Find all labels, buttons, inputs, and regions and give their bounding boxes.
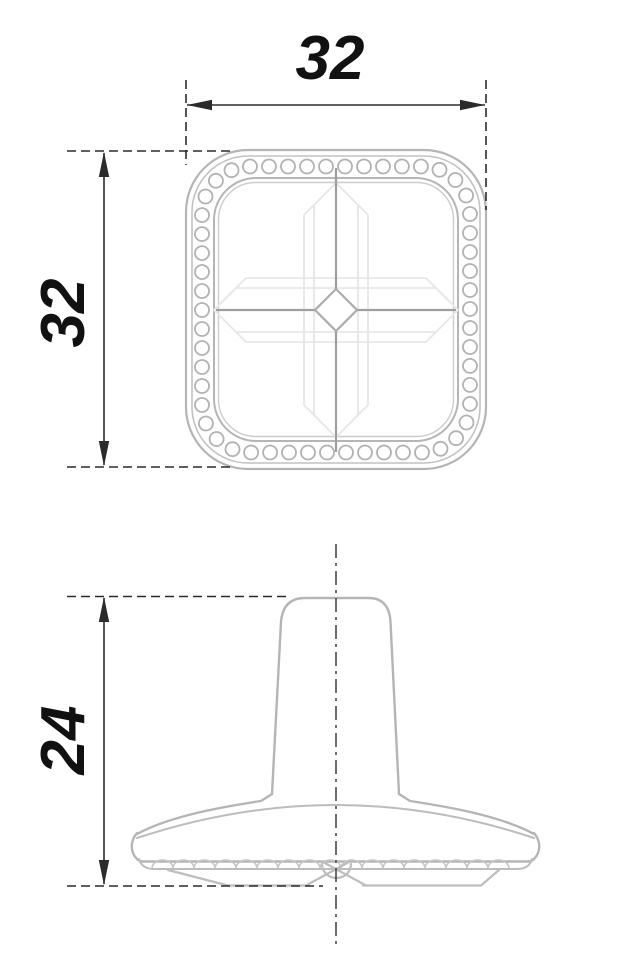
arrow-down-icon: [99, 441, 109, 466]
bottom-plate-left: [168, 870, 309, 886]
top-view: [186, 150, 486, 469]
bead-circle: [463, 283, 477, 297]
bottom-plate-right: [363, 870, 499, 886]
bead-circle: [396, 446, 410, 460]
bead-circle: [262, 160, 276, 174]
dimension-label-width: 32: [296, 24, 365, 93]
bead-circle: [434, 442, 448, 456]
bead-circle: [244, 446, 258, 460]
bead-circle: [463, 245, 477, 259]
technical-drawing-page: 32 32 24: [0, 0, 637, 962]
dimension-label-side-height: 24: [29, 706, 98, 776]
bead-circle: [449, 431, 463, 445]
bead-circle: [243, 160, 257, 174]
bead-circle: [195, 379, 209, 393]
bead-circle: [463, 378, 477, 392]
center-diamond: [315, 289, 357, 331]
bead-circle: [463, 397, 477, 411]
bead-circle: [195, 227, 209, 241]
dimension-label-height: 32: [29, 279, 98, 348]
arrow-up-icon: [99, 597, 109, 622]
bead-circle: [195, 398, 209, 412]
bead-circle: [199, 190, 213, 204]
bottom-plate: [168, 862, 499, 886]
bead-circle: [395, 160, 409, 174]
bead-circle: [225, 163, 239, 177]
bead-circle: [463, 321, 477, 335]
arrow-up-icon: [99, 152, 109, 177]
bead-circle: [433, 163, 447, 177]
arrow-down-icon: [99, 860, 109, 885]
bead-circle: [377, 446, 391, 460]
bead-circle: [338, 160, 352, 174]
bead-circle: [195, 322, 209, 336]
knob-dimension-drawing: 32 32 24: [0, 0, 637, 962]
bead-circle: [414, 160, 428, 174]
dimension-arrowheads: [99, 100, 485, 885]
bead-circle: [195, 341, 209, 355]
arrow-right-icon: [460, 100, 485, 110]
arrow-left-icon: [187, 100, 212, 110]
bead-circle: [195, 284, 209, 298]
bead-circle: [463, 302, 477, 316]
bead-circle: [195, 360, 209, 374]
bead-circle: [459, 189, 473, 203]
bead-circle: [448, 173, 462, 187]
bead-circle: [281, 160, 295, 174]
bead-circle: [320, 446, 334, 460]
bead-circle: [195, 246, 209, 260]
bead-circle: [195, 208, 209, 222]
bead-circle: [209, 174, 223, 188]
bead-circle: [460, 416, 474, 430]
base-flare-right: [399, 794, 534, 834]
bead-circle: [463, 340, 477, 354]
bead-circle: [463, 207, 477, 221]
bead-circle: [282, 446, 296, 460]
bead-circle: [301, 446, 315, 460]
bead-circle: [300, 160, 314, 174]
bead-circle: [415, 446, 429, 460]
bead-circle: [195, 303, 209, 317]
bead-circle: [357, 160, 371, 174]
bead-circle: [358, 446, 372, 460]
bead-circle: [210, 432, 224, 446]
bead-circle: [195, 265, 209, 279]
bead-circle: [226, 442, 240, 456]
bead-circle: [263, 446, 277, 460]
bead-circle: [339, 446, 353, 460]
bead-circle: [376, 160, 390, 174]
side-view: [132, 544, 540, 948]
bead-circle: [319, 160, 333, 174]
bead-circle: [199, 417, 213, 431]
base-flare-left: [137, 794, 272, 834]
bead-circle: [463, 359, 477, 373]
bead-circle: [463, 226, 477, 240]
bead-circle: [463, 264, 477, 278]
